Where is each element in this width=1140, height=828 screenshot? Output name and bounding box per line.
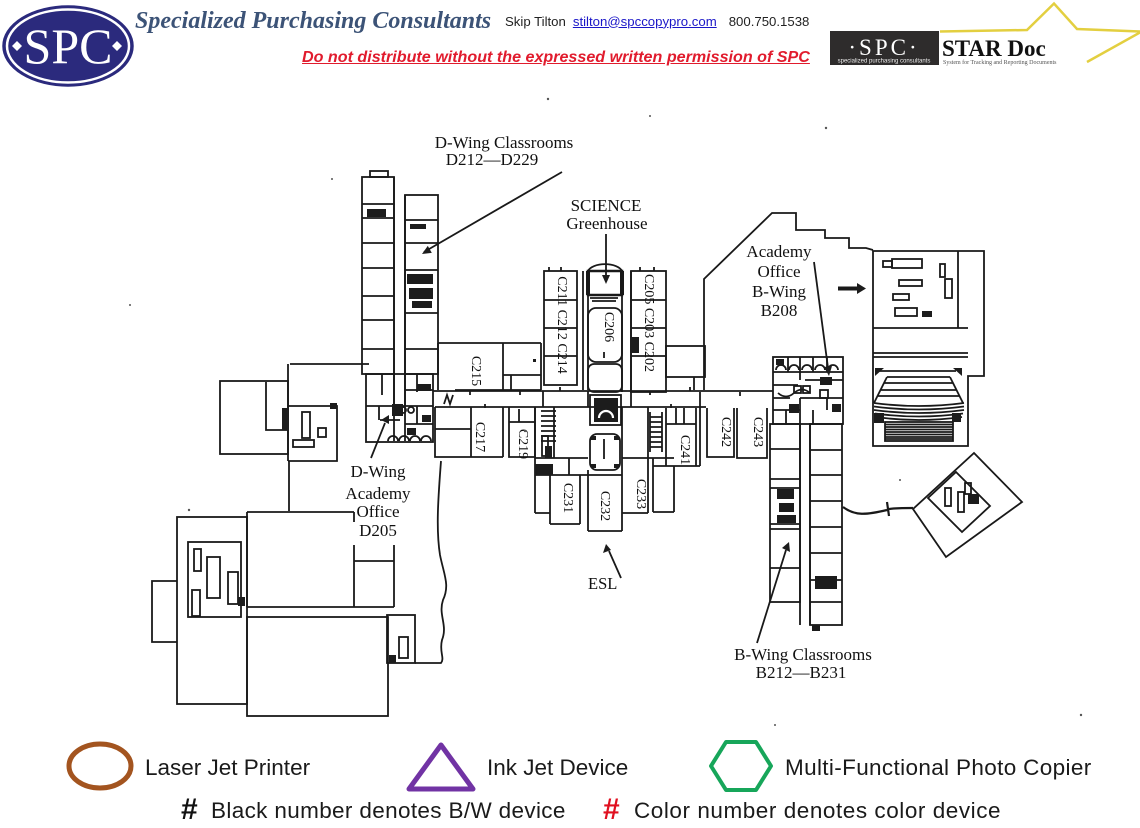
svg-text:C233: C233: [633, 479, 648, 509]
svg-text:C243: C243: [750, 417, 765, 447]
svg-text:C242: C242: [718, 417, 733, 447]
svg-text:Color number denotes color dev: Color number denotes color device: [634, 798, 1001, 823]
svg-text:D-Wing: D-Wing: [350, 462, 406, 481]
svg-text:C217: C217: [472, 422, 487, 452]
svg-text:SCIENCE: SCIENCE: [571, 196, 642, 215]
svg-text:Ink Jet Device: Ink Jet Device: [487, 755, 628, 780]
svg-text:Multi-Functional Photo Copier: Multi-Functional Photo Copier: [785, 755, 1092, 780]
svg-text:C241: C241: [677, 435, 692, 465]
svg-text:C211 C212 C214: C211 C212 C214: [554, 276, 569, 374]
svg-text:C231: C231: [560, 483, 575, 513]
svg-text:C205 C203 C202: C205 C203 C202: [641, 274, 656, 372]
svg-text:B212—B231: B212—B231: [756, 663, 847, 682]
svg-text:Black number denotes B/W devic: Black number denotes B/W device: [211, 798, 566, 823]
svg-text:#: #: [181, 793, 198, 826]
svg-text:B208: B208: [761, 301, 798, 320]
svg-text:Office: Office: [356, 502, 399, 521]
svg-text:D205: D205: [359, 521, 397, 540]
svg-text:C215: C215: [468, 356, 483, 386]
svg-text:C206: C206: [601, 312, 616, 342]
svg-text:C219: C219: [515, 429, 530, 459]
svg-text:Academy: Academy: [746, 242, 812, 261]
svg-text:#: #: [603, 793, 620, 826]
svg-text:D212—D229: D212—D229: [446, 150, 539, 169]
svg-text:Laser Jet Printer: Laser Jet Printer: [145, 755, 311, 780]
svg-text:Greenhouse: Greenhouse: [566, 214, 647, 233]
svg-text:ESL: ESL: [588, 574, 617, 593]
svg-text:B-Wing Classrooms: B-Wing Classrooms: [734, 645, 872, 664]
svg-text:B-Wing: B-Wing: [752, 282, 807, 301]
svg-text:Academy: Academy: [345, 484, 411, 503]
svg-text:Office: Office: [757, 262, 800, 281]
svg-text:C232: C232: [597, 491, 612, 521]
